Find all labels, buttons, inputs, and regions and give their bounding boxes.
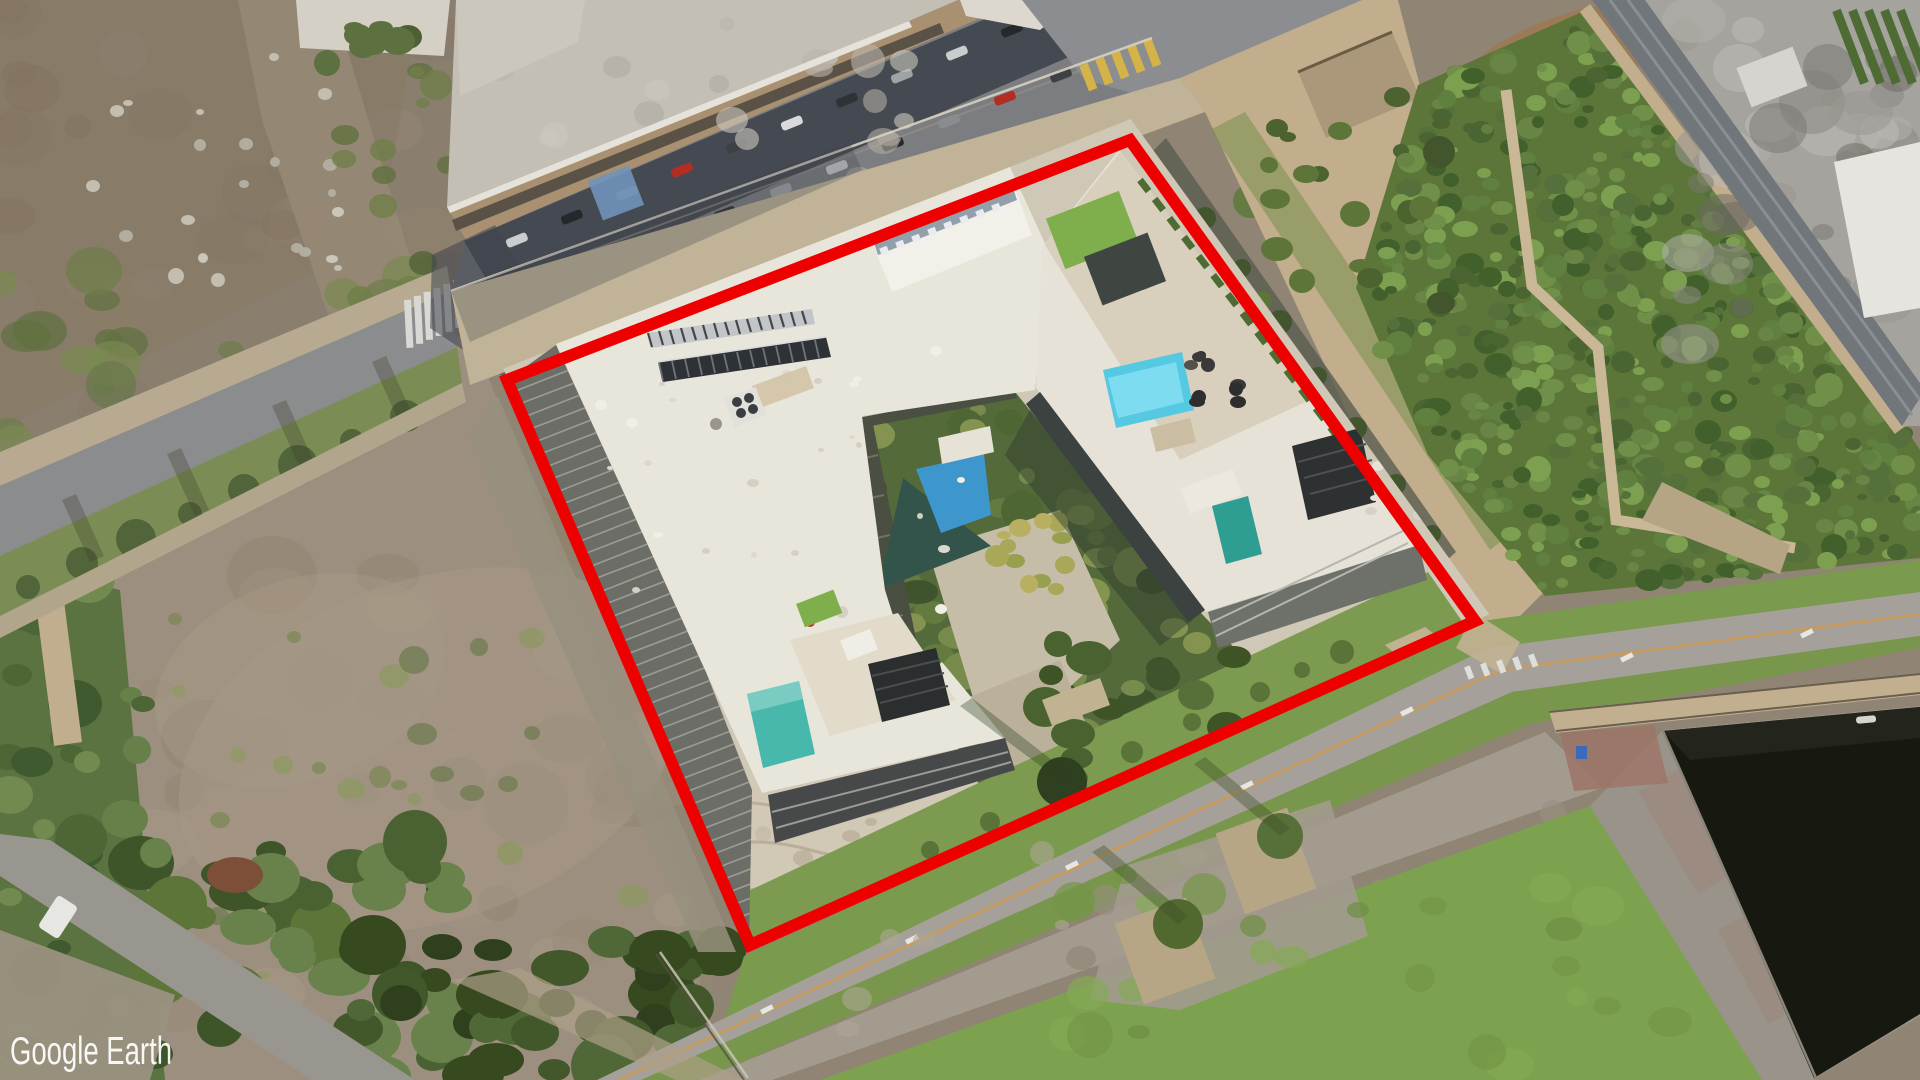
svg-text:Google Earth: Google Earth (10, 1030, 172, 1073)
